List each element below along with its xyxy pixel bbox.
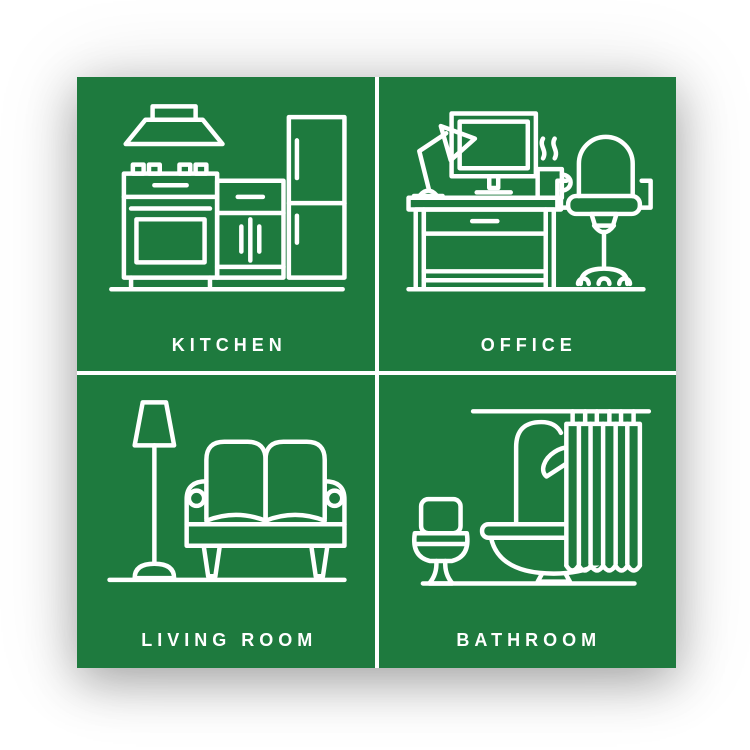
sofa-icon <box>186 441 344 575</box>
living-room-icon-area <box>77 373 377 619</box>
toilet-icon <box>415 499 468 583</box>
fridge-icon <box>289 117 345 277</box>
quadrant-bathroom: BATHROOM <box>377 373 677 669</box>
range-hood-icon <box>125 107 222 145</box>
room-poster: KITCHEN <box>77 77 676 668</box>
room-label-office: OFFICE <box>377 335 677 356</box>
living-room-icon <box>97 388 357 603</box>
kitchen-cabinet-icon <box>217 181 283 278</box>
quadrant-kitchen: KITCHEN <box>77 77 377 373</box>
kitchen-icon-area <box>77 77 377 323</box>
quadrant-office: OFFICE <box>377 77 677 373</box>
room-label-living-room: LIVING ROOM <box>77 630 377 651</box>
coffee-mug-icon <box>538 139 571 198</box>
page-background: { "poster": { "rooms": [ { "label": "KIT… <box>0 0 750 750</box>
bathroom-icon <box>396 388 656 603</box>
desk-icon <box>409 198 561 289</box>
desk-lamp-icon <box>414 126 475 196</box>
monitor-icon <box>452 114 536 193</box>
quadrant-living-room: LIVING ROOM <box>77 373 377 669</box>
office-chair-icon <box>558 137 651 284</box>
room-label-bathroom: BATHROOM <box>377 630 677 651</box>
office-icon <box>396 92 656 307</box>
room-label-kitchen: KITCHEN <box>77 335 377 356</box>
kitchen-icon <box>97 92 357 307</box>
horizontal-divider <box>77 371 676 375</box>
floor-lamp-icon <box>134 402 173 578</box>
shower-curtain-icon <box>473 411 649 570</box>
stove-icon <box>124 165 217 287</box>
bathroom-icon-area <box>377 373 677 619</box>
office-icon-area <box>377 77 677 323</box>
